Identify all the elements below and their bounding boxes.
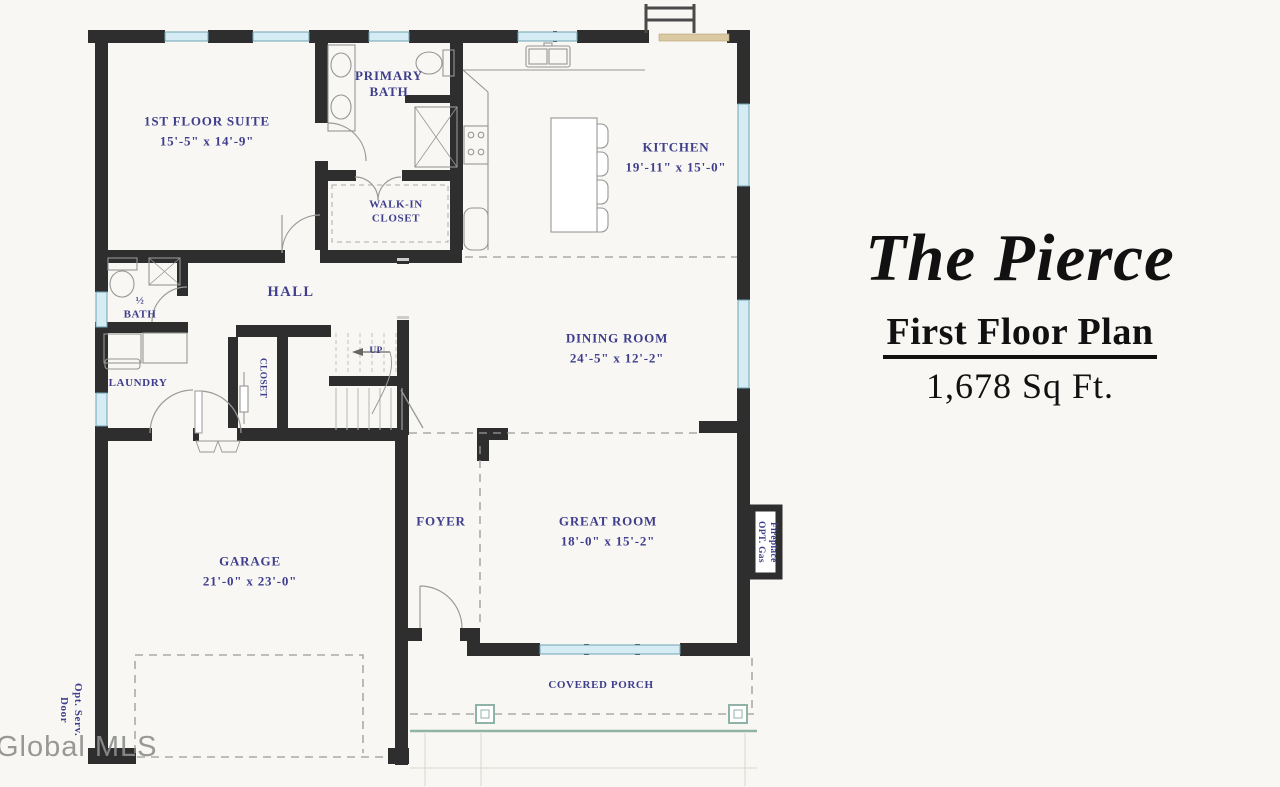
garage-entry-door-leaf [195, 391, 202, 433]
kitchen-dims: 19'-11" x 15'-0" [626, 157, 727, 177]
mls-watermark: Global MLS [0, 731, 158, 764]
rear-stoop [646, 4, 694, 33]
room-label-closet: CLOSET [256, 358, 267, 398]
room-label-kitchen: KITCHEN 19'-11" x 15'-0" [626, 138, 727, 177]
great-room-name: GREAT ROOM [559, 514, 657, 529]
room-label-foyer: FOYER [416, 511, 466, 531]
plan-subtitle: First Floor Plan [883, 310, 1158, 359]
room-label-dining: DINING ROOM 24'-5" x 12'-2" [566, 329, 668, 368]
plan-name: The Pierce [828, 222, 1212, 296]
room-label-primary-bath: PRIMARY BATH [342, 68, 437, 101]
title-block: The Pierce First Floor Plan 1,678 Sq Ft. [828, 222, 1212, 407]
fireplace-label: OPT. Gas Fireplace [754, 506, 778, 578]
kitchen-name: KITCHEN [642, 140, 709, 155]
room-label-laundry: LAUNDRY [109, 375, 168, 392]
rear-door [659, 34, 729, 41]
room-label-walk-in-closet: WALK-IN CLOSET [351, 198, 441, 226]
great-room-dims: 18'-0" x 15'-2" [559, 531, 657, 551]
garage-name: GARAGE [219, 554, 281, 569]
floor-plan-sheet: 1ST FLOOR SUITE 15'-5" x 14'-9" PRIMARY … [0, 0, 1280, 787]
room-label-garage: GARAGE 21'-0" x 23'-0" [203, 552, 297, 591]
suite-name: 1ST FLOOR SUITE [144, 114, 270, 129]
room-label-hall: HALL [267, 282, 314, 304]
room-label-great-room: GREAT ROOM 18'-0" x 15'-2" [559, 512, 657, 551]
dining-name: DINING ROOM [566, 331, 668, 346]
suite-dims: 15'-5" x 14'-9" [144, 131, 270, 151]
plan-square-footage: 1,678 Sq Ft. [828, 365, 1212, 407]
room-label-suite: 1ST FLOOR SUITE 15'-5" x 14'-9" [144, 112, 270, 151]
porch-lines [410, 705, 757, 786]
garage-dims: 21'-0" x 23'-0" [203, 571, 297, 591]
room-label-covered-porch: COVERED PORCH [546, 679, 656, 693]
kitchen-island [551, 118, 608, 232]
room-label-half-bath: ½ BATH [119, 294, 161, 322]
dining-dims: 24'-5" x 12'-2" [566, 348, 668, 368]
stairs-up-label: UP [369, 344, 382, 358]
